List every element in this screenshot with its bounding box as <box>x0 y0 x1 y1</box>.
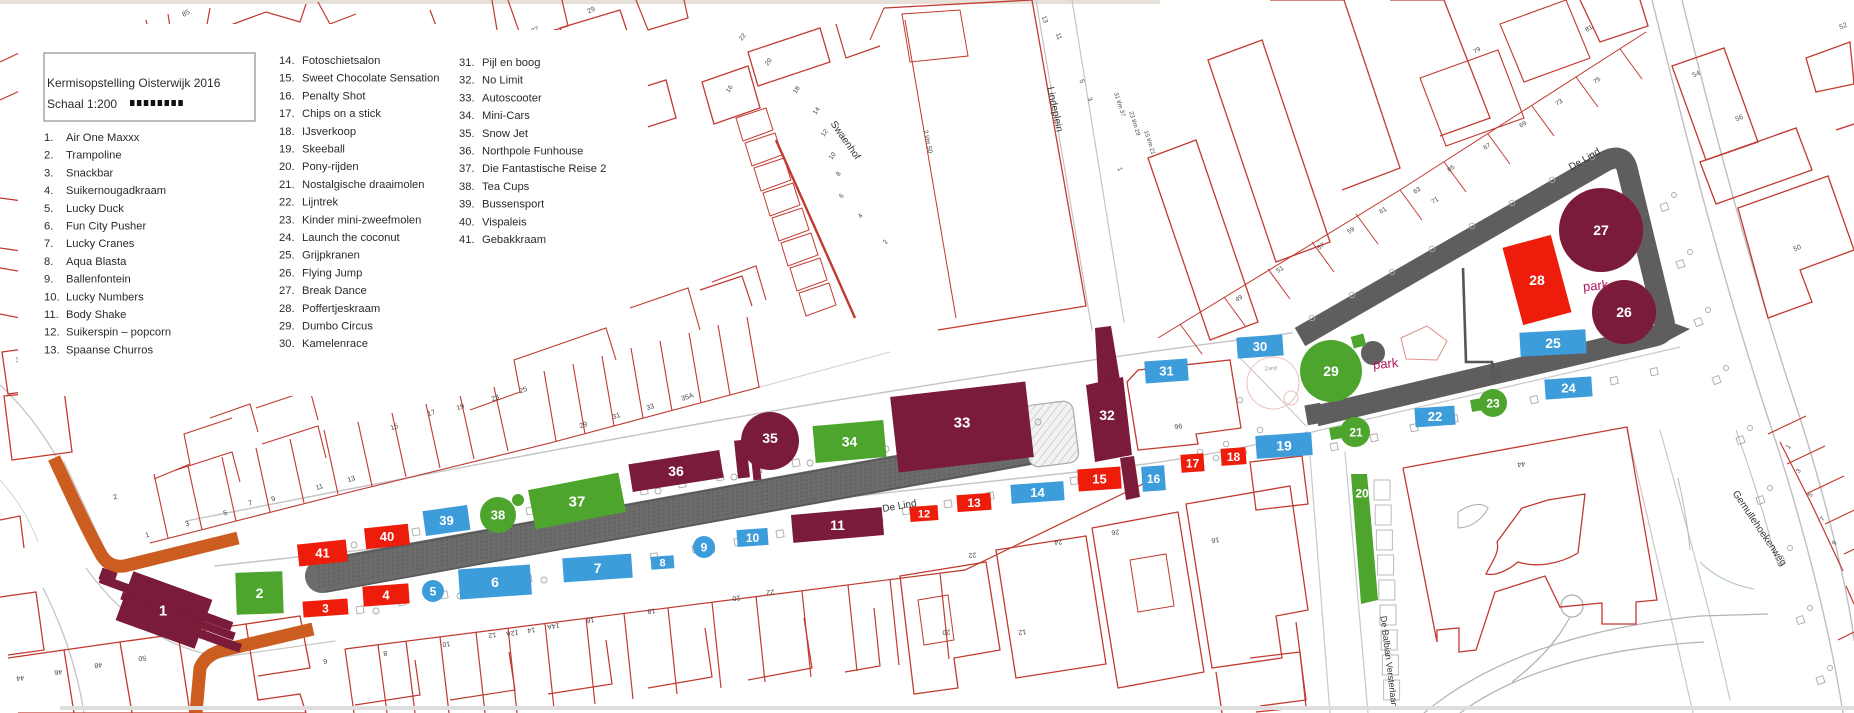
svg-text:48: 48 <box>94 660 103 668</box>
svg-text:28.: 28. <box>279 303 295 315</box>
svg-text:20.: 20. <box>279 161 295 173</box>
svg-text:20: 20 <box>732 593 741 601</box>
svg-text:Grijpkranen: Grijpkranen <box>302 250 360 262</box>
svg-text:Zand: Zand <box>1264 365 1277 372</box>
svg-text:15.: 15. <box>279 73 295 85</box>
svg-text:10.: 10. <box>44 291 60 303</box>
svg-text:Pony-rijden: Pony-rijden <box>302 161 359 173</box>
svg-text:5: 5 <box>430 584 437 598</box>
svg-text:10: 10 <box>442 639 451 647</box>
svg-text:29.: 29. <box>279 321 295 333</box>
svg-text:33: 33 <box>954 414 971 431</box>
svg-text:27: 27 <box>1593 222 1609 238</box>
svg-text:10: 10 <box>746 531 760 545</box>
svg-text:40: 40 <box>380 529 394 544</box>
svg-text:3: 3 <box>322 601 329 615</box>
svg-text:96: 96 <box>1174 421 1183 429</box>
svg-text:Die Fantastische Reise 2: Die Fantastische Reise 2 <box>482 163 606 175</box>
svg-text:35: 35 <box>762 430 778 446</box>
svg-text:Autoscooter: Autoscooter <box>482 92 542 104</box>
svg-text:38.: 38. <box>459 181 475 193</box>
svg-text:9: 9 <box>701 540 708 554</box>
svg-text:No Limit: No Limit <box>482 75 524 87</box>
svg-text:8: 8 <box>659 558 665 570</box>
svg-text:7.: 7. <box>44 238 53 250</box>
svg-text:39: 39 <box>439 513 453 528</box>
svg-text:Launch the coconut: Launch the coconut <box>302 232 401 244</box>
svg-text:Schaal 1:200: Schaal 1:200 <box>47 97 117 111</box>
svg-text:Air One Maxxx: Air One Maxxx <box>66 132 140 144</box>
svg-text:7: 7 <box>594 560 602 576</box>
svg-text:21: 21 <box>1349 425 1363 439</box>
svg-text:37.: 37. <box>459 163 475 175</box>
svg-text:Tea Cups: Tea Cups <box>482 181 530 193</box>
svg-text:6.: 6. <box>44 221 53 233</box>
svg-text:Spaanse Churros: Spaanse Churros <box>66 344 153 356</box>
svg-text:8.: 8. <box>44 256 53 268</box>
svg-text:13: 13 <box>967 496 981 510</box>
svg-text:Body Shake: Body Shake <box>66 309 126 321</box>
svg-text:33.: 33. <box>459 92 475 104</box>
svg-text:Fotoschietsalon: Fotoschietsalon <box>302 55 380 67</box>
svg-text:Dumbo Circus: Dumbo Circus <box>302 321 373 333</box>
svg-text:34: 34 <box>842 434 858 450</box>
svg-text:35.: 35. <box>459 128 475 140</box>
svg-text:12.: 12. <box>44 327 60 339</box>
svg-text:Fun City Pusher: Fun City Pusher <box>66 221 146 233</box>
svg-text:24.: 24. <box>279 232 295 244</box>
svg-text:2.: 2. <box>44 150 53 162</box>
svg-text:2: 2 <box>256 585 264 601</box>
svg-text:1.: 1. <box>44 132 53 144</box>
svg-text:18.: 18. <box>279 126 295 138</box>
svg-text:Snow Jet: Snow Jet <box>482 128 529 140</box>
svg-text:44: 44 <box>1517 459 1526 467</box>
svg-text:Vispaleis: Vispaleis <box>482 216 527 228</box>
svg-text:37: 37 <box>569 493 586 510</box>
svg-text:Chips on a stick: Chips on a stick <box>302 108 381 120</box>
svg-text:36: 36 <box>668 463 684 479</box>
svg-text:4: 4 <box>382 588 390 603</box>
svg-text:32.: 32. <box>459 75 475 87</box>
svg-text:Suikerspin – popcorn: Suikerspin – popcorn <box>66 327 171 339</box>
svg-text:34.: 34. <box>459 110 475 122</box>
svg-text:Lucky Duck: Lucky Duck <box>66 203 124 215</box>
svg-text:18: 18 <box>1227 450 1241 464</box>
svg-text:Nostalgische draaimolen: Nostalgische draaimolen <box>302 179 425 191</box>
svg-text:44: 44 <box>16 673 25 681</box>
svg-text:31.: 31. <box>459 57 475 69</box>
svg-text:30.: 30. <box>279 338 295 350</box>
svg-text:Ballenfontein: Ballenfontein <box>66 274 131 286</box>
svg-text:22: 22 <box>766 587 775 595</box>
svg-text:3.: 3. <box>44 167 53 179</box>
svg-text:Snackbar: Snackbar <box>66 167 114 179</box>
svg-text:Gebakkraam: Gebakkraam <box>482 234 546 246</box>
svg-text:22: 22 <box>1428 409 1442 424</box>
svg-text:11.: 11. <box>44 309 59 321</box>
svg-text:22: 22 <box>968 550 977 558</box>
svg-text:16: 16 <box>1211 535 1220 543</box>
svg-text:14: 14 <box>1030 485 1045 500</box>
svg-text:park: park <box>1372 355 1399 372</box>
svg-text:Flying Jump: Flying Jump <box>302 267 362 279</box>
svg-text:Aqua Blasta: Aqua Blasta <box>66 256 127 268</box>
svg-text:14: 14 <box>527 625 536 633</box>
svg-text:Sweet Chocolate Sensation: Sweet Chocolate Sensation <box>302 73 439 85</box>
svg-text:15: 15 <box>1092 472 1106 487</box>
svg-text:Kermisopstelling Oisterwijk 20: Kermisopstelling Oisterwijk 2016 <box>47 76 221 90</box>
svg-text:13.: 13. <box>44 344 60 356</box>
svg-text:Suikernougadkraam: Suikernougadkraam <box>66 185 166 197</box>
svg-text:19.: 19. <box>279 144 295 156</box>
svg-text:Skeeball: Skeeball <box>302 144 345 156</box>
svg-text:20: 20 <box>1355 486 1369 500</box>
svg-text:39.: 39. <box>459 199 475 211</box>
svg-text:36.: 36. <box>459 146 475 158</box>
svg-text:19: 19 <box>1276 438 1292 454</box>
svg-text:Poffertjeskraam: Poffertjeskraam <box>302 303 380 315</box>
svg-text:Trampoline: Trampoline <box>66 150 122 162</box>
svg-text:5.: 5. <box>44 203 53 215</box>
svg-text:12: 12 <box>918 509 930 521</box>
svg-text:Mini-Cars: Mini-Cars <box>482 110 530 122</box>
svg-text:20: 20 <box>942 627 951 635</box>
svg-text:21.: 21. <box>279 179 295 191</box>
svg-text:17: 17 <box>1186 456 1200 470</box>
svg-text:Penalty Shot: Penalty Shot <box>302 90 366 102</box>
svg-text:50: 50 <box>138 653 147 661</box>
svg-text:17.: 17. <box>279 108 295 120</box>
svg-text:23.: 23. <box>279 214 295 226</box>
svg-text:Bussensport: Bussensport <box>482 199 545 211</box>
svg-text:24: 24 <box>1561 381 1576 396</box>
svg-text:12: 12 <box>1018 627 1027 635</box>
svg-text:16: 16 <box>586 615 595 623</box>
svg-text:28: 28 <box>1529 272 1545 288</box>
svg-text:40.: 40. <box>459 216 475 228</box>
svg-text:46: 46 <box>54 667 63 675</box>
svg-text:Kamelenrace: Kamelenrace <box>302 338 368 350</box>
svg-text:park: park <box>1582 277 1609 294</box>
svg-text:26.: 26. <box>279 267 295 279</box>
svg-text:27.: 27. <box>279 285 295 297</box>
svg-text:22.: 22. <box>279 197 295 209</box>
svg-text:16: 16 <box>1147 472 1161 486</box>
svg-text:12: 12 <box>488 630 497 638</box>
svg-text:41: 41 <box>315 546 329 561</box>
svg-text:26: 26 <box>1111 527 1120 535</box>
svg-text:24: 24 <box>1054 537 1063 545</box>
svg-text:11: 11 <box>830 517 845 533</box>
svg-text:25.: 25. <box>279 250 295 262</box>
svg-text:25: 25 <box>1545 335 1561 351</box>
svg-text:38: 38 <box>491 508 505 523</box>
svg-text:16.: 16. <box>279 90 295 102</box>
svg-text:4.: 4. <box>44 185 53 197</box>
svg-text:Northpole Funhouse: Northpole Funhouse <box>482 146 583 158</box>
svg-text:Lijntrek: Lijntrek <box>302 197 338 209</box>
svg-text:Break Dance: Break Dance <box>302 285 367 297</box>
svg-text:23: 23 <box>1486 396 1500 410</box>
svg-text:14.: 14. <box>279 55 295 67</box>
svg-text:26: 26 <box>1616 304 1632 320</box>
svg-text:29: 29 <box>1323 363 1339 379</box>
svg-text:31: 31 <box>1159 364 1173 379</box>
svg-text:41.: 41. <box>459 234 475 246</box>
svg-text:IJsverkoop: IJsverkoop <box>302 126 356 138</box>
svg-text:Pijl en boog: Pijl en boog <box>482 57 540 69</box>
svg-text:6: 6 <box>491 574 499 590</box>
svg-text:18: 18 <box>647 606 656 614</box>
svg-text:30: 30 <box>1253 339 1267 354</box>
svg-text:32: 32 <box>1099 407 1115 423</box>
svg-text:Lucky Cranes: Lucky Cranes <box>66 238 135 250</box>
svg-text:Kinder mini-zweefmolen: Kinder mini-zweefmolen <box>302 214 421 226</box>
svg-text:9.: 9. <box>44 274 53 286</box>
svg-text:Lucky Numbers: Lucky Numbers <box>66 291 144 303</box>
svg-text:1: 1 <box>159 602 167 619</box>
